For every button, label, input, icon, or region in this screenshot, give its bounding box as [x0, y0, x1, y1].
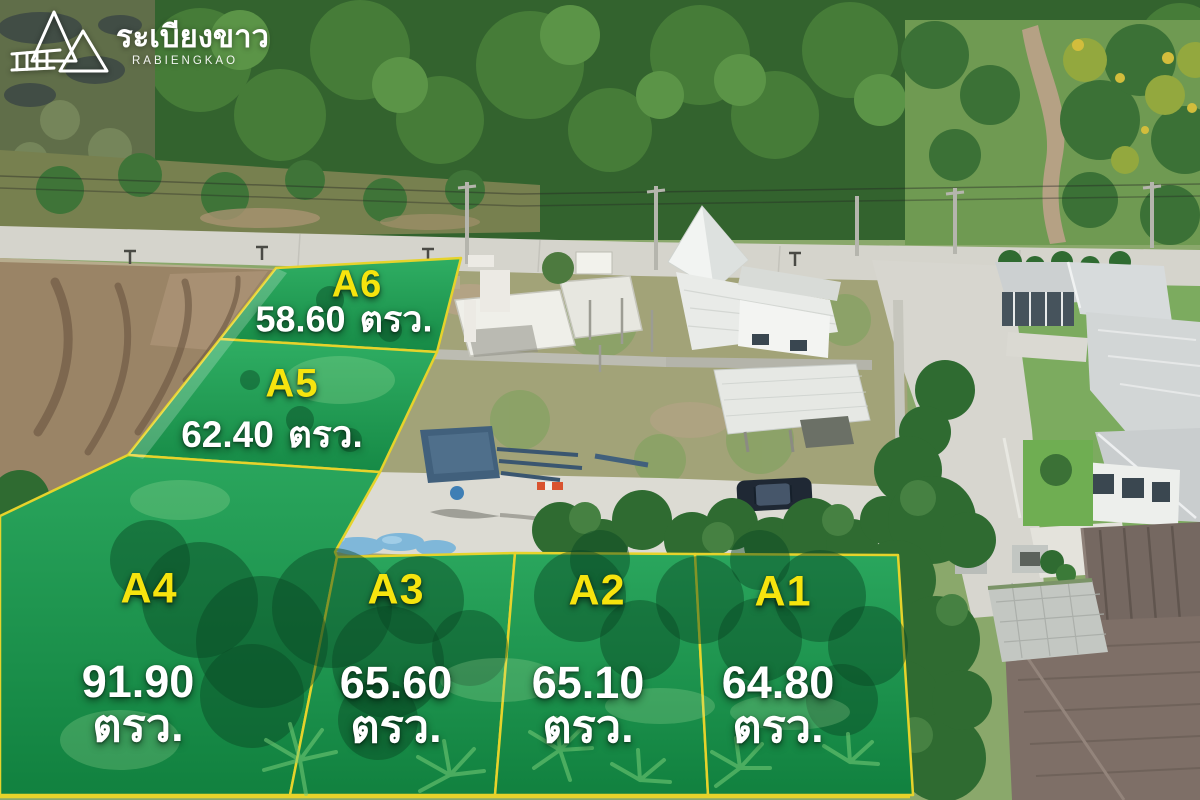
- plot-a3-area-unit: ตรว.: [340, 705, 453, 749]
- plot-a5-area-unit: ตรว.: [288, 417, 363, 453]
- plot-a4-area-unit: ตรว.: [82, 704, 195, 748]
- plot-a4-area: 91.90ตรว.: [82, 660, 195, 748]
- brand-words: ระเบียงขาว RABIENGKAO: [116, 21, 269, 67]
- plot-a2-area: 65.10ตรว.: [532, 661, 645, 749]
- plot-a6-area: 58.60ตรว.: [255, 301, 432, 336]
- plot-a1-area: 64.80ตรว.: [722, 661, 835, 749]
- plot-a5-area: 62.40ตรว.: [181, 417, 363, 453]
- plot-a2-id: A2: [569, 567, 626, 616]
- plot-a1-area-number: 64.80: [722, 661, 835, 705]
- plot-a3-area-number: 65.60: [340, 661, 453, 705]
- plot-a4-id: A4: [121, 565, 178, 614]
- plot-a1-area-unit: ตรว.: [722, 705, 835, 749]
- plot-a2-area-unit: ตรว.: [532, 705, 645, 749]
- plot-a4-area-number: 91.90: [82, 660, 195, 704]
- house-mountain-icon: [10, 8, 110, 80]
- plot-a5-id: A5: [265, 362, 318, 407]
- plot-a2-area-number: 65.10: [532, 661, 645, 705]
- aerial-plot-map: A6 58.60ตรว. A5 62.40ตรว. A4 91.90ตรว. A…: [0, 0, 1200, 800]
- plot-a5-area-number: 62.40: [181, 417, 274, 453]
- plot-a3-id: A3: [368, 566, 425, 615]
- plot-a6-area-number: 58.60: [255, 301, 345, 336]
- brand-logo: ระเบียงขาว RABIENGKAO: [10, 8, 269, 80]
- plot-a1-id: A1: [755, 568, 812, 617]
- plot-a6-area-unit: ตรว.: [360, 301, 433, 336]
- brand-name-thai: ระเบียงขาว: [116, 21, 269, 52]
- brand-name-latin: RABIENGKAO: [132, 55, 269, 67]
- plot-a3-area: 65.60ตรว.: [340, 661, 453, 749]
